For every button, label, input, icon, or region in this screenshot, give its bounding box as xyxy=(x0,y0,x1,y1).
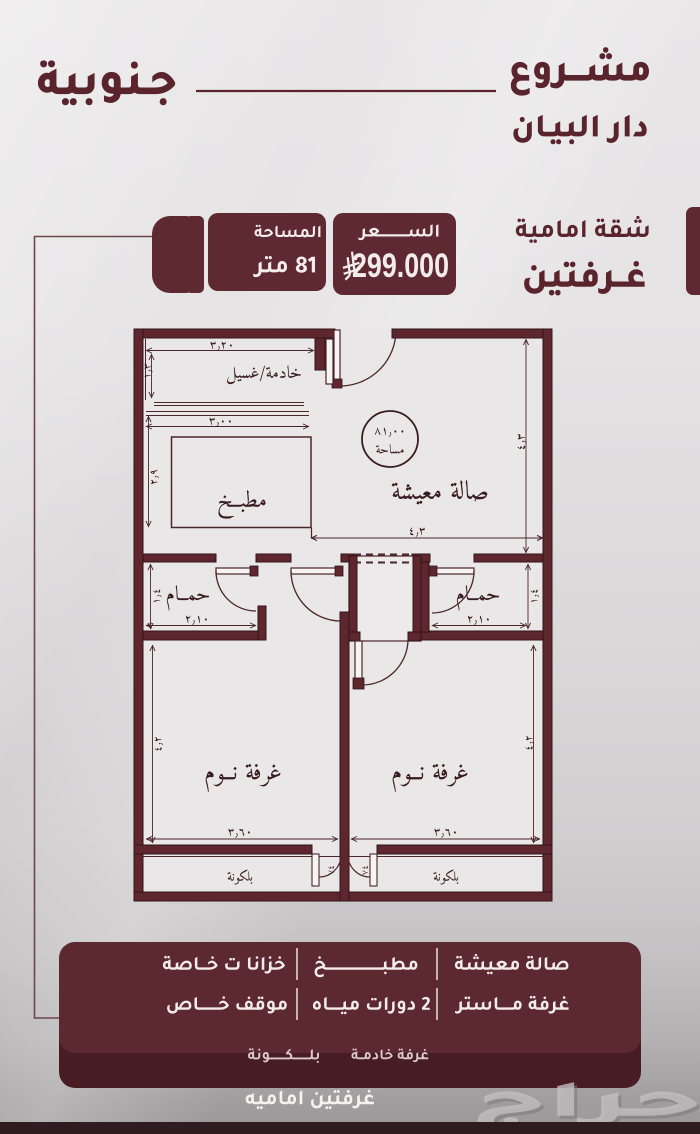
svg-text:299.000: 299.000 xyxy=(352,247,449,285)
